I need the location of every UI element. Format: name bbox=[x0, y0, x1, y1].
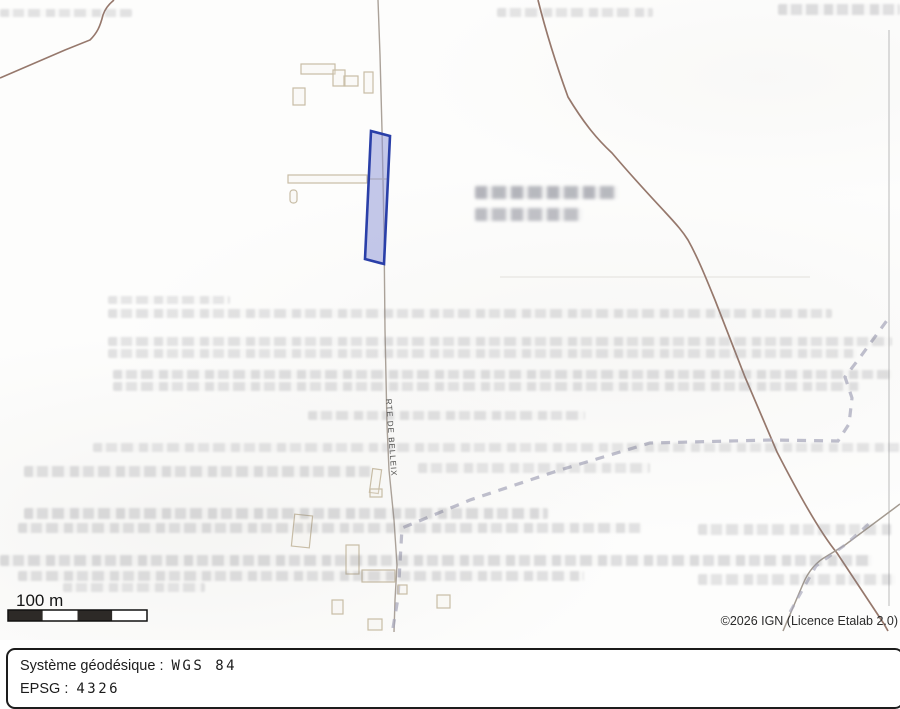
geodetic-system-label: Système géodésique : bbox=[20, 658, 163, 674]
epsg-value: 4326 bbox=[76, 681, 120, 697]
road-lower-right bbox=[783, 504, 900, 631]
page: RTE DE BELLEIX 100 m ©2026 IGN (Licence … bbox=[0, 0, 900, 709]
epsg-row: EPSG :4326 bbox=[20, 678, 900, 701]
building-footprint bbox=[344, 76, 358, 86]
building-footprint bbox=[346, 545, 359, 574]
scale-bar-segment bbox=[8, 610, 43, 621]
building-footprint bbox=[398, 585, 407, 594]
building-footprint bbox=[293, 88, 305, 105]
map-canvas: RTE DE BELLEIX 100 m ©2026 IGN (Licence … bbox=[0, 0, 900, 640]
road-upper-left bbox=[0, 0, 114, 78]
scale-bar-label: 100 m bbox=[16, 591, 63, 610]
building-footprint bbox=[364, 72, 373, 93]
epsg-label: EPSG : bbox=[20, 681, 68, 697]
map-attribution: ©2026 IGN (Licence Etalab 2.0) bbox=[721, 614, 898, 628]
road-name-label: RTE DE BELLEIX bbox=[384, 399, 398, 477]
building-footprint bbox=[332, 600, 343, 614]
footpath-dashed bbox=[393, 319, 888, 628]
building-footprint bbox=[368, 619, 382, 630]
scale-bar-segment bbox=[78, 610, 113, 621]
scale-bar: 100 m bbox=[8, 591, 147, 621]
geodetic-system-value: WGS 84 bbox=[171, 658, 237, 674]
building-footprint bbox=[301, 64, 335, 74]
building-footprint bbox=[370, 489, 382, 497]
parcel-highlight-polygon bbox=[365, 131, 390, 264]
map-area: RTE DE BELLEIX 100 m ©2026 IGN (Licence … bbox=[0, 0, 900, 640]
geodetic-system-row: Système géodésique :WGS 84 bbox=[20, 655, 900, 678]
building-footprint bbox=[333, 70, 345, 86]
building-footprint bbox=[290, 190, 297, 203]
scale-bar-segment bbox=[112, 610, 147, 621]
road-main-diagonal bbox=[538, 0, 888, 631]
road-rte-de-belleix bbox=[378, 0, 397, 632]
building-footprint bbox=[362, 570, 395, 582]
building-footprint bbox=[437, 595, 450, 608]
coordinate-info-panel: Système géodésique :WGS 84 EPSG :4326 bbox=[6, 648, 900, 709]
building-footprint bbox=[291, 514, 312, 548]
building-footprint bbox=[288, 175, 367, 183]
scale-bar-segment bbox=[43, 610, 78, 621]
